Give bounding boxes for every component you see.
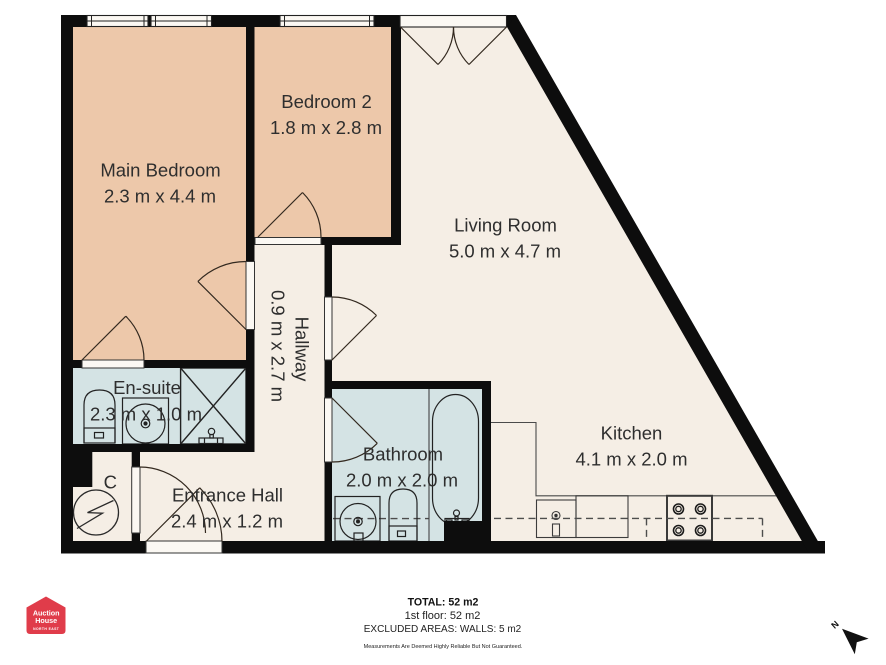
svg-text:Bathroom: Bathroom [363,444,443,465]
svg-text:5.0 m x 4.7 m: 5.0 m x 4.7 m [449,241,561,262]
svg-text:0.9 m x 2.7 m: 0.9 m x 2.7 m [268,290,289,402]
svg-text:1.8 m x 2.8 m: 1.8 m x 2.8 m [270,117,382,138]
svg-text:2.4 m x 1.2 m: 2.4 m x 1.2 m [171,511,283,532]
svg-text:Hallway: Hallway [292,317,313,383]
svg-text:House: House [35,616,57,625]
svg-text:C: C [104,472,117,493]
svg-text:EXCLUDED AREAS: WALLS: 5 m2: EXCLUDED AREAS: WALLS: 5 m2 [364,624,522,635]
svg-text:Kitchen: Kitchen [601,423,663,444]
svg-text:Bedroom 2: Bedroom 2 [281,91,372,112]
svg-text:4.1 m x 2.0 m: 4.1 m x 2.0 m [575,449,687,470]
svg-text:2.3 m x 4.4 m: 2.3 m x 4.4 m [104,185,216,206]
svg-text:En-suite: En-suite [113,377,181,398]
svg-text:TOTAL: 52 m2: TOTAL: 52 m2 [408,597,479,609]
svg-text:2.0 m x 2.0 m: 2.0 m x 2.0 m [346,470,458,491]
svg-text:Main Bedroom: Main Bedroom [100,159,220,180]
svg-text:Living Room: Living Room [454,215,557,236]
svg-text:N: N [829,619,841,631]
svg-text:2.3 m x 1.0 m: 2.3 m x 1.0 m [90,404,202,425]
svg-text:Measurements Are Deemed Highly: Measurements Are Deemed Highly Reliable … [364,644,523,650]
svg-text:1st floor: 52 m2: 1st floor: 52 m2 [405,610,481,622]
svg-text:Entrance Hall: Entrance Hall [172,485,283,506]
svg-text:NORTH EAST: NORTH EAST [33,627,60,631]
